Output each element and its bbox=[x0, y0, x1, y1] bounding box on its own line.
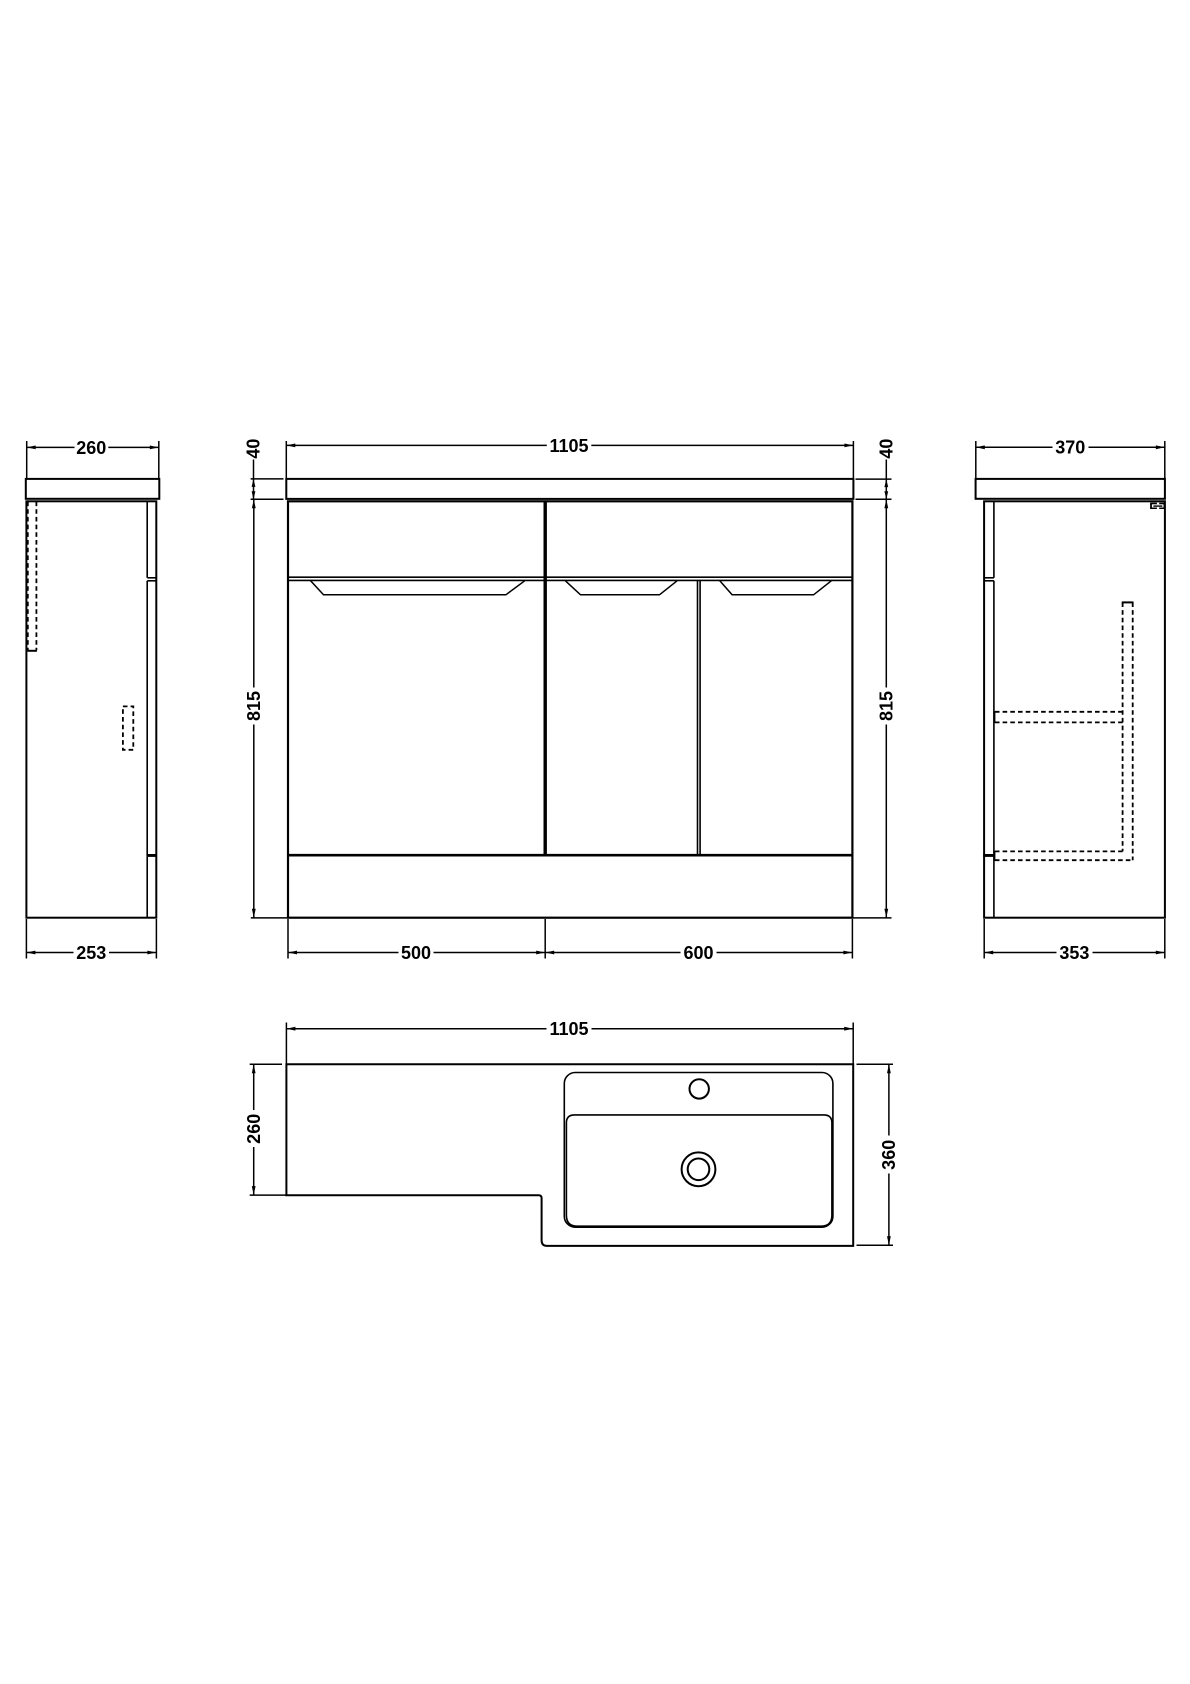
svg-text:40: 40 bbox=[244, 439, 264, 459]
svg-text:500: 500 bbox=[401, 943, 431, 963]
svg-text:1105: 1105 bbox=[549, 436, 588, 456]
svg-text:815: 815 bbox=[244, 691, 264, 721]
svg-text:260: 260 bbox=[244, 1114, 264, 1144]
svg-text:40: 40 bbox=[877, 439, 897, 459]
svg-text:353: 353 bbox=[1059, 943, 1089, 963]
svg-text:260: 260 bbox=[76, 438, 106, 458]
svg-text:360: 360 bbox=[879, 1140, 899, 1170]
svg-text:600: 600 bbox=[683, 943, 713, 963]
svg-text:815: 815 bbox=[877, 691, 897, 721]
svg-text:1105: 1105 bbox=[549, 1019, 588, 1039]
svg-text:370: 370 bbox=[1055, 438, 1085, 458]
svg-text:253: 253 bbox=[76, 943, 106, 963]
